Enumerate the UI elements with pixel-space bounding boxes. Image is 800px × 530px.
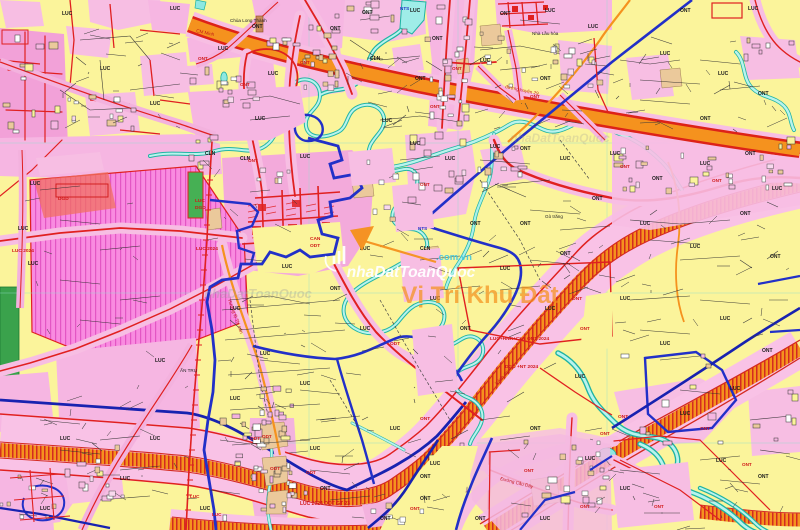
- svg-text:ONT: ONT: [530, 426, 541, 432]
- svg-text:ONT: ONT: [700, 426, 710, 432]
- svg-text:DGD: DGD: [58, 196, 69, 202]
- svg-text:LUC: LUC: [230, 396, 241, 402]
- svg-text:CLN: CLN: [205, 151, 216, 157]
- svg-text:ẤN TRỤ: ẤN TRỤ: [180, 367, 197, 373]
- svg-text:LUC: LUC: [690, 244, 701, 250]
- svg-text:ONT: ONT: [580, 326, 590, 331]
- svg-text:ONT: ONT: [252, 24, 263, 30]
- svg-text:ONT: ONT: [600, 431, 610, 436]
- svg-text:ONT: ONT: [470, 221, 481, 227]
- svg-text:ONT: ONT: [430, 104, 440, 109]
- svg-text:ONT: ONT: [240, 82, 250, 87]
- svg-text:ONT: ONT: [410, 506, 420, 511]
- svg-text:LUC: LUC: [490, 144, 501, 150]
- svg-text:LUC: LUC: [60, 436, 71, 442]
- svg-text:ONT: ONT: [198, 56, 208, 61]
- svg-text:LUC: LUC: [212, 512, 222, 517]
- svg-text:ONT: ONT: [300, 60, 310, 65]
- svg-text:ONT: ONT: [248, 158, 258, 163]
- svg-text:LUC: LUC: [150, 436, 161, 442]
- svg-text:LUC: LUC: [300, 381, 311, 387]
- svg-text:LUC: LUC: [18, 226, 29, 232]
- svg-text:LUC: LUC: [28, 261, 39, 267]
- svg-text:ONT: ONT: [572, 296, 582, 302]
- svg-text:LUC: LUC: [170, 6, 181, 12]
- svg-text:LUC: LUC: [360, 326, 371, 332]
- svg-text:ONT: ONT: [770, 254, 781, 260]
- svg-text:ODT: ODT: [306, 470, 316, 475]
- svg-text:.com.vn: .com.vn: [436, 252, 472, 263]
- svg-text:ONT: ONT: [712, 178, 722, 183]
- svg-text:CLN: CLN: [370, 56, 381, 62]
- svg-text:ONT: ONT: [320, 486, 331, 492]
- svg-text:ONT: ONT: [758, 91, 769, 97]
- svg-text:ONT: ONT: [620, 164, 630, 169]
- svg-text:LUC: LUC: [195, 198, 205, 204]
- svg-text:LUC: LUC: [218, 46, 229, 52]
- svg-text:ONT: ONT: [500, 11, 511, 17]
- svg-text:Vị Trí Khu Đất: Vị Trí Khu Đất: [401, 282, 558, 309]
- svg-text:ODT: ODT: [310, 243, 320, 249]
- svg-text:ONT: ONT: [330, 26, 341, 32]
- svg-text:LUC: LUC: [390, 426, 401, 432]
- svg-text:LUC: LUC: [748, 6, 759, 12]
- svg-text:LUC: LUC: [310, 446, 321, 452]
- svg-text:LUC: LUC: [200, 506, 211, 512]
- svg-text:LUC: LUC: [700, 161, 711, 167]
- svg-text:LUC 2024 ODT GT 23: LUC 2024 ODT GT 23: [300, 501, 350, 507]
- svg-text:LUC: LUC: [620, 296, 631, 302]
- svg-text:LUC: LUC: [640, 221, 651, 227]
- svg-text:ONT: ONT: [652, 176, 663, 182]
- svg-text:Chùa Long Thành: Chùa Long Thành: [230, 18, 267, 23]
- svg-text:LUC: LUC: [120, 476, 131, 482]
- svg-text:ONT: ONT: [580, 504, 590, 509]
- svg-text:ONT: ONT: [540, 76, 551, 82]
- svg-text:LUC: LUC: [410, 8, 421, 14]
- svg-text:ONT: ONT: [592, 196, 603, 202]
- svg-text:LUC: LUC: [100, 66, 111, 72]
- svg-text:LUC: LUC: [62, 11, 73, 17]
- svg-text:LUC: LUC: [190, 494, 200, 499]
- svg-text:LUC: LUC: [255, 116, 266, 122]
- svg-text:LUC: LUC: [282, 264, 293, 270]
- svg-text:Nhà Lầu hòa: Nhà Lầu hòa: [532, 31, 559, 36]
- svg-text:CLN: CLN: [420, 246, 431, 252]
- svg-text:DGD: DGD: [195, 205, 206, 211]
- svg-text:nhaDatToanQuoc: nhaDatToanQuoc: [204, 286, 313, 301]
- svg-text:LUC: LUC: [150, 101, 161, 107]
- svg-text:ONT: ONT: [742, 462, 752, 467]
- svg-text:ONT: ONT: [758, 474, 769, 480]
- svg-text:ONT: ONT: [432, 36, 443, 42]
- svg-text:ONT: ONT: [530, 94, 540, 99]
- svg-text:ONT: ONT: [700, 116, 711, 122]
- svg-text:LUC: LUC: [560, 156, 571, 162]
- svg-text:ONT: ONT: [762, 348, 773, 354]
- svg-text:Gò trăng: Gò trăng: [545, 214, 563, 219]
- svg-text:LUC: LUC: [260, 351, 271, 357]
- svg-text:LUC: LUC: [40, 506, 51, 512]
- svg-text:LUC: LUC: [588, 24, 599, 30]
- svg-text:ONT: ONT: [520, 221, 531, 227]
- svg-text:ONT: ONT: [654, 504, 664, 509]
- svg-text:ONT: ONT: [680, 8, 691, 14]
- svg-text:ONT: ONT: [415, 76, 426, 82]
- svg-text:ODT: ODT: [250, 436, 260, 442]
- svg-text:LUC: LUC: [718, 71, 729, 77]
- svg-text:ONT: ONT: [420, 474, 431, 480]
- svg-text:LUC+HNK+CLN ONT 2024: LUC+HNK+CLN ONT 2024: [490, 336, 550, 342]
- svg-text:LUC: LUC: [268, 71, 279, 77]
- svg-text:LUC: LUC: [730, 386, 741, 392]
- svg-text:ONT: ONT: [745, 151, 756, 157]
- svg-text:ONT: ONT: [452, 66, 462, 71]
- svg-text:ODT: ODT: [390, 341, 400, 347]
- svg-text:LUC 2024: LUC 2024: [12, 248, 34, 254]
- svg-text:ONT: ONT: [420, 496, 431, 502]
- svg-text:ONT: ONT: [380, 516, 391, 522]
- svg-text:nhaDatToanQuoc: nhaDatToanQuoc: [510, 131, 610, 145]
- svg-text:NTS: NTS: [400, 6, 409, 11]
- svg-text:NTS: NTS: [418, 226, 427, 231]
- svg-text:LUC: LUC: [500, 266, 511, 272]
- svg-text:CAN: CAN: [310, 236, 321, 242]
- svg-text:ONT: ONT: [420, 182, 430, 187]
- svg-text:LUC: LUC: [540, 516, 551, 522]
- svg-text:LUC: LUC: [720, 316, 731, 322]
- svg-text:ONT: ONT: [420, 416, 430, 422]
- svg-text:ONT: ONT: [740, 211, 751, 217]
- svg-text:LUC: LUC: [300, 154, 311, 160]
- svg-text:LUC: LUC: [30, 181, 41, 187]
- svg-text:nhaDatToanQuoc: nhaDatToanQuoc: [347, 264, 476, 281]
- svg-text:ONT: ONT: [330, 286, 341, 292]
- svg-text:ONT: ONT: [618, 414, 628, 420]
- svg-text:ODT: ODT: [262, 434, 272, 439]
- svg-text:LUC: LUC: [620, 486, 631, 492]
- svg-text:LUC: LUC: [585, 456, 596, 462]
- svg-text:LUC: LUC: [716, 458, 727, 464]
- svg-text:LUC: LUC: [660, 341, 671, 347]
- svg-text:LUC: LUC: [610, 151, 621, 157]
- svg-text:LUC: LUC: [575, 374, 586, 380]
- svg-text:LUC: LUC: [660, 51, 671, 57]
- svg-text:LUC: LUC: [772, 186, 783, 192]
- svg-text:LUC: LUC: [545, 8, 556, 14]
- svg-text:ODT: ODT: [270, 466, 280, 472]
- svg-text:LUC: LUC: [382, 118, 393, 124]
- svg-text:ONT: ONT: [560, 251, 571, 257]
- svg-text:ONT: ONT: [460, 326, 471, 332]
- svg-text:ONT: ONT: [475, 516, 486, 522]
- svg-text:LUC: LUC: [410, 141, 421, 147]
- svg-text:LUC: LUC: [430, 461, 441, 467]
- svg-text:LUC: LUC: [155, 358, 166, 364]
- svg-text:LUC: LUC: [445, 156, 456, 162]
- svg-text:LUC: LUC: [480, 58, 491, 64]
- svg-text:ONT: ONT: [520, 146, 531, 152]
- svg-text:ONT: ONT: [362, 10, 373, 16]
- svg-text:ONT: ONT: [524, 468, 534, 473]
- svg-text:LUC: LUC: [680, 411, 691, 417]
- svg-text:LUC 2024: LUC 2024: [196, 246, 218, 252]
